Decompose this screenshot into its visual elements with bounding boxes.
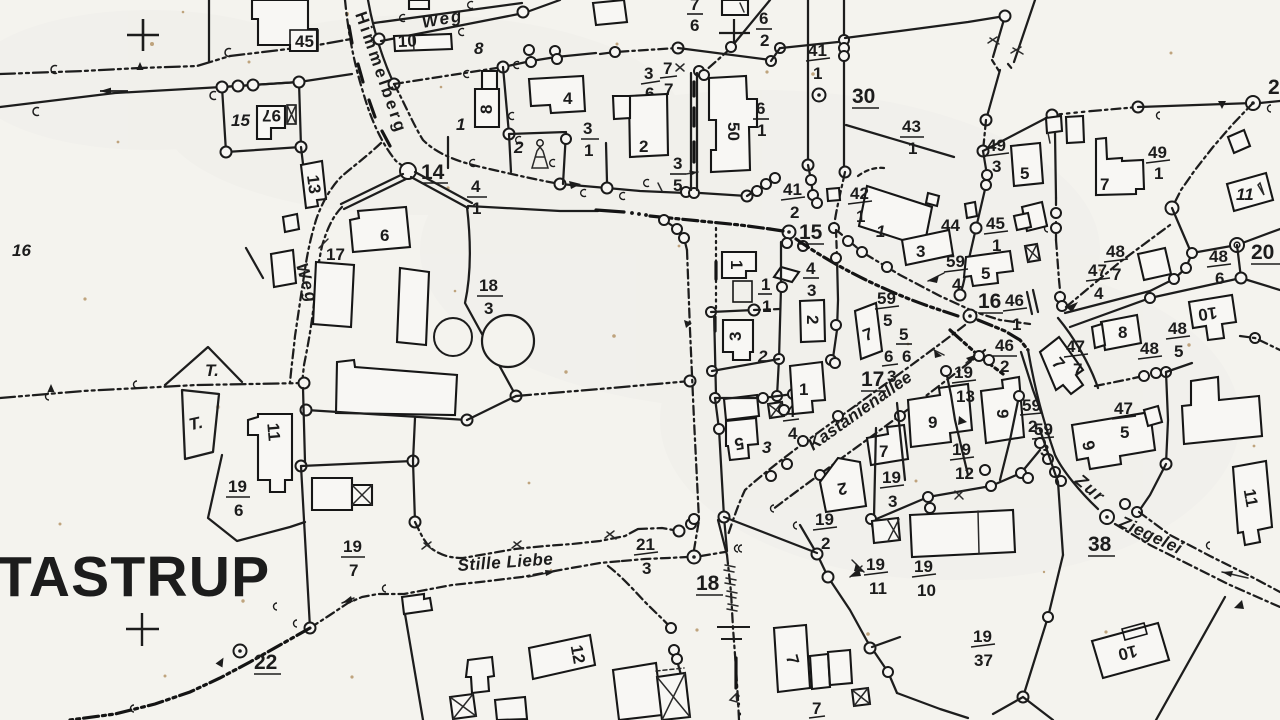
svg-text:19: 19 <box>882 468 901 487</box>
svg-text:6: 6 <box>756 99 765 118</box>
svg-text:7: 7 <box>349 561 358 580</box>
svg-text:5: 5 <box>673 176 682 195</box>
svg-text:1: 1 <box>813 64 822 83</box>
svg-text:3: 3 <box>762 438 772 457</box>
svg-text:1: 1 <box>727 260 746 269</box>
svg-text:8: 8 <box>1118 323 1127 342</box>
svg-text:1: 1 <box>876 222 885 241</box>
svg-text:TASTRUP: TASTRUP <box>0 545 270 609</box>
svg-text:19: 19 <box>866 555 885 574</box>
svg-text:48: 48 <box>1168 319 1187 338</box>
svg-text:48: 48 <box>1209 247 1228 266</box>
svg-text:1: 1 <box>1012 315 1021 334</box>
svg-text:1: 1 <box>1154 164 1163 183</box>
svg-text:97: 97 <box>262 106 281 125</box>
svg-text:15: 15 <box>799 221 823 244</box>
svg-text:5: 5 <box>899 325 908 344</box>
svg-text:1: 1 <box>908 139 917 158</box>
svg-text:4: 4 <box>788 424 798 443</box>
svg-text:10: 10 <box>1197 303 1218 324</box>
svg-text:22: 22 <box>254 651 277 674</box>
svg-text:6: 6 <box>1215 269 1224 288</box>
svg-text:6: 6 <box>380 226 389 245</box>
svg-text:2: 2 <box>639 137 648 156</box>
svg-text:5: 5 <box>981 264 990 283</box>
svg-text:10: 10 <box>397 31 417 51</box>
svg-text:19: 19 <box>228 477 247 496</box>
svg-text:1: 1 <box>799 380 808 399</box>
svg-text:T.: T. <box>205 361 219 380</box>
svg-text:5: 5 <box>1120 423 1129 442</box>
svg-text:3: 3 <box>642 559 651 578</box>
svg-text:3: 3 <box>583 119 592 138</box>
svg-text:59: 59 <box>1034 420 1053 439</box>
svg-text:48: 48 <box>1140 339 1159 358</box>
svg-text:12: 12 <box>567 643 589 665</box>
svg-text:19: 19 <box>954 363 973 382</box>
svg-text:6: 6 <box>690 16 699 35</box>
svg-text:6: 6 <box>884 347 893 366</box>
svg-text:16: 16 <box>12 241 31 260</box>
svg-text:7: 7 <box>690 0 699 14</box>
svg-text:4: 4 <box>471 177 481 196</box>
svg-text:10: 10 <box>917 581 936 600</box>
svg-text:15: 15 <box>231 111 250 130</box>
svg-text:1: 1 <box>584 141 593 160</box>
svg-text:4: 4 <box>563 89 573 108</box>
svg-text:3: 3 <box>807 281 816 300</box>
svg-text:2: 2 <box>1268 76 1280 99</box>
svg-text:38: 38 <box>1088 533 1112 556</box>
svg-text:37: 37 <box>974 651 993 670</box>
svg-text:7: 7 <box>663 59 672 78</box>
svg-text:19: 19 <box>973 627 992 646</box>
svg-text:21: 21 <box>636 535 655 554</box>
svg-text:8: 8 <box>474 39 484 58</box>
svg-text:47: 47 <box>1088 261 1107 280</box>
svg-text:13: 13 <box>956 387 975 406</box>
svg-text:17: 17 <box>326 245 345 264</box>
svg-text:18: 18 <box>479 276 498 295</box>
svg-text:6: 6 <box>234 501 243 520</box>
svg-text:41: 41 <box>783 180 802 199</box>
svg-text:3: 3 <box>644 64 653 83</box>
svg-text:45: 45 <box>986 214 1005 233</box>
svg-text:19: 19 <box>914 557 933 576</box>
svg-text:19: 19 <box>815 510 834 529</box>
svg-text:20: 20 <box>1251 241 1274 264</box>
svg-text:47: 47 <box>1114 399 1133 418</box>
svg-text:12: 12 <box>955 464 974 483</box>
svg-text:11: 11 <box>1240 487 1262 508</box>
svg-text:7: 7 <box>1100 175 1109 194</box>
svg-text:18: 18 <box>696 572 720 595</box>
svg-text:7: 7 <box>879 442 888 461</box>
svg-text:1: 1 <box>472 199 481 218</box>
svg-text:49: 49 <box>1148 143 1167 162</box>
svg-text:1: 1 <box>761 275 770 294</box>
svg-text:4: 4 <box>952 275 962 294</box>
svg-text:7: 7 <box>812 699 821 718</box>
svg-text:1: 1 <box>762 297 771 316</box>
svg-text:42: 42 <box>850 184 869 203</box>
svg-text:2: 2 <box>803 315 822 324</box>
svg-text:3: 3 <box>916 242 925 261</box>
svg-text:4: 4 <box>1094 284 1104 303</box>
svg-text:13: 13 <box>303 174 324 195</box>
svg-text:6: 6 <box>902 347 911 366</box>
svg-text:7: 7 <box>1073 360 1082 379</box>
svg-text:49: 49 <box>987 136 1006 155</box>
svg-text:3: 3 <box>992 157 1001 176</box>
svg-text:9: 9 <box>993 409 1012 418</box>
svg-text:43: 43 <box>902 117 921 136</box>
svg-text:5: 5 <box>883 311 892 330</box>
svg-text:1: 1 <box>757 121 766 140</box>
svg-text:2: 2 <box>1000 357 1009 376</box>
svg-text:3: 3 <box>484 299 493 318</box>
svg-text:11: 11 <box>1236 185 1254 204</box>
svg-text:16: 16 <box>978 290 1001 313</box>
svg-text:1: 1 <box>856 207 865 226</box>
svg-text:11: 11 <box>869 579 887 598</box>
svg-text:3: 3 <box>726 332 745 341</box>
svg-text:3: 3 <box>888 492 897 511</box>
svg-text:9: 9 <box>928 413 937 432</box>
svg-text:3: 3 <box>673 154 682 173</box>
svg-text:1: 1 <box>456 115 465 134</box>
svg-text:50: 50 <box>724 122 743 141</box>
svg-text:48: 48 <box>1106 242 1125 261</box>
svg-text:41: 41 <box>808 41 827 60</box>
svg-text:30: 30 <box>852 85 875 108</box>
svg-text:5: 5 <box>1174 342 1183 361</box>
svg-text:46: 46 <box>1005 291 1024 310</box>
svg-text:46: 46 <box>995 336 1014 355</box>
svg-text:59: 59 <box>877 289 896 308</box>
svg-text:8: 8 <box>477 105 496 114</box>
svg-text:2: 2 <box>760 31 769 50</box>
svg-text:4: 4 <box>806 259 816 278</box>
svg-text:2: 2 <box>821 534 830 553</box>
svg-text:19: 19 <box>343 537 362 556</box>
svg-text:59: 59 <box>946 252 965 271</box>
svg-text:2: 2 <box>513 138 524 157</box>
svg-text:2: 2 <box>790 203 799 222</box>
svg-text:5: 5 <box>1020 164 1029 183</box>
svg-text:45: 45 <box>295 32 314 51</box>
svg-text:11: 11 <box>263 422 283 442</box>
